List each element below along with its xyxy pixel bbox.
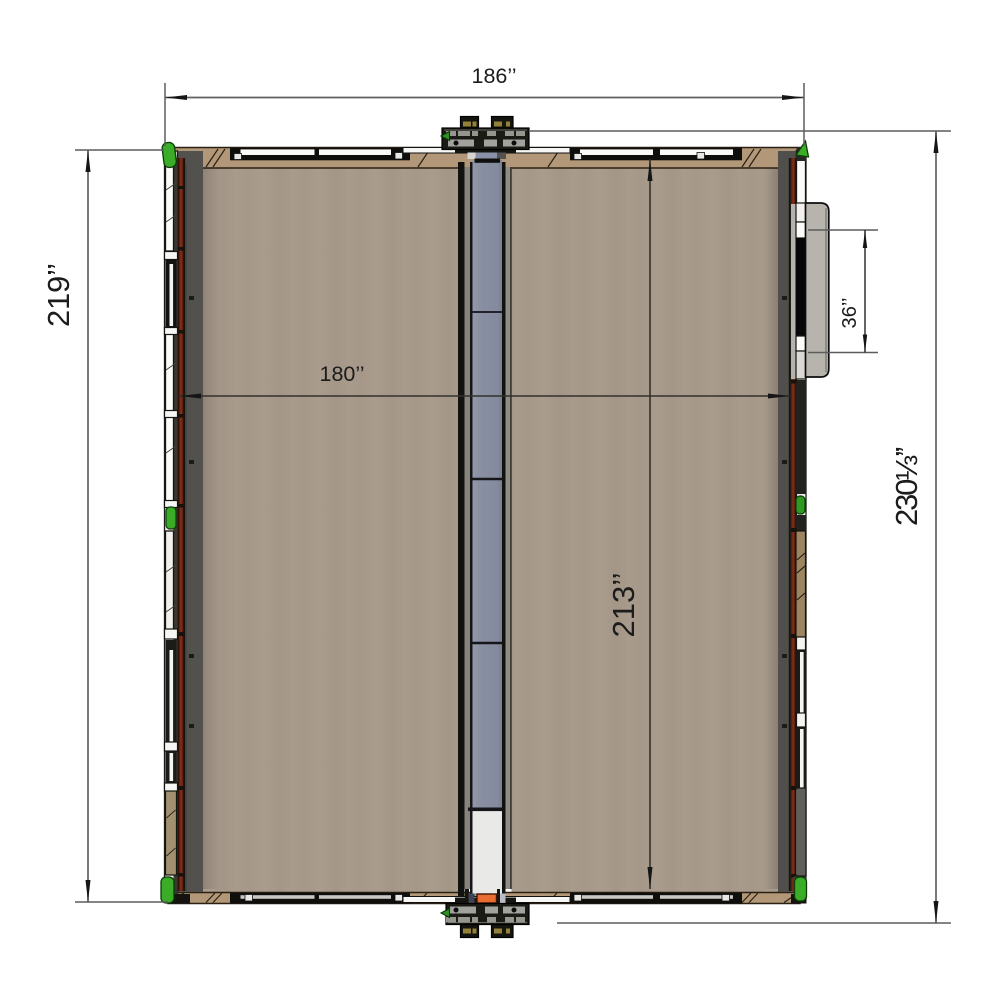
svg-text:219’’: 219’’ (41, 263, 76, 327)
svg-text:180’’: 180’’ (320, 362, 365, 386)
svg-text:230⅓’’: 230⅓’’ (889, 446, 924, 526)
svg-text:213’’: 213’’ (606, 573, 641, 638)
svg-text:186’’: 186’’ (472, 64, 517, 88)
svg-text:36’’: 36’’ (839, 298, 861, 329)
